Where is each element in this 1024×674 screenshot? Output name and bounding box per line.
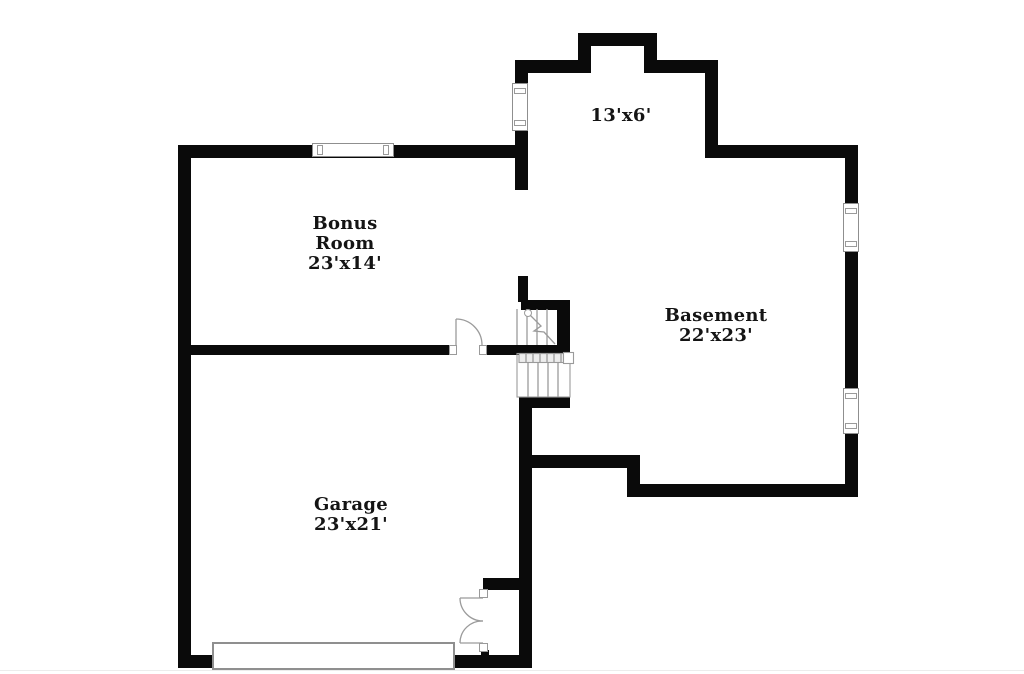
image-bottom-edge	[0, 670, 1024, 671]
garage-label: Garage 23'x21'	[314, 495, 388, 535]
bonus-room-dimensions: 23'x14'	[308, 254, 382, 274]
bonus-room-name-line2: Room	[308, 234, 382, 254]
bonus-room-swing-door	[456, 319, 482, 345]
basement-dimensions: 22'x23'	[665, 326, 768, 346]
bonus-room-label: Bonus Room 23'x14'	[308, 214, 382, 274]
bonus-room-name-line1: Bonus	[308, 214, 382, 234]
nook-dimensions: 13'x6'	[590, 106, 651, 126]
nook-label: 13'x6'	[590, 106, 651, 126]
basement-name: Basement	[665, 306, 768, 326]
floor-plan: Bonus Room 23'x14' Basement 22'x23' Gara…	[0, 0, 1024, 674]
central-staircase	[517, 309, 574, 397]
garage-dimensions: 23'x21'	[314, 515, 388, 535]
basement-label: Basement 22'x23'	[665, 306, 768, 346]
garage-name: Garage	[314, 495, 388, 515]
door-and-stair-symbols	[0, 0, 1024, 674]
garage-double-swing-door	[460, 598, 483, 643]
